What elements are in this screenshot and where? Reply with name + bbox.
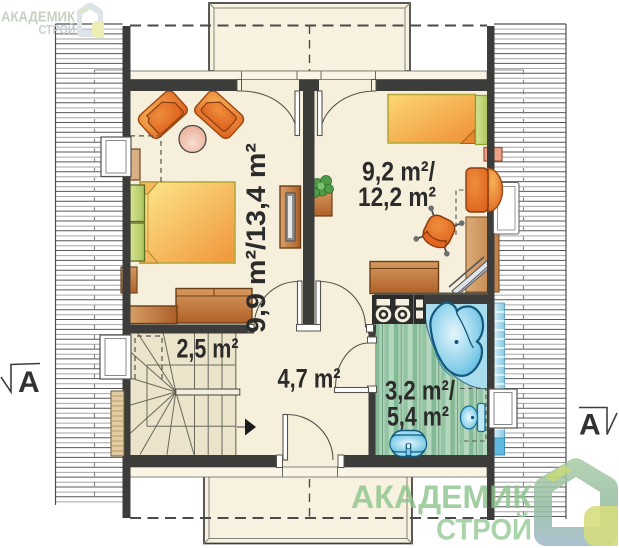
- svg-text:4,7 m²: 4,7 m²: [278, 364, 341, 394]
- svg-text:СТРОЙ: СТРОЙ: [39, 22, 76, 37]
- svg-text:СТРОЙ: СТРОЙ: [436, 513, 532, 547]
- svg-text:9,9 m²/13,4 m²: 9,9 m²/13,4 m²: [241, 143, 271, 333]
- svg-text:2,5 m²: 2,5 m²: [177, 334, 239, 364]
- svg-text:12,2 m²: 12,2 m²: [358, 182, 436, 212]
- svg-text:A: A: [18, 366, 40, 399]
- svg-text:АКАДЕМИК: АКАДЕМИК: [351, 479, 532, 515]
- svg-text:A: A: [579, 409, 601, 442]
- svg-text:5,4 m²: 5,4 m²: [387, 402, 449, 432]
